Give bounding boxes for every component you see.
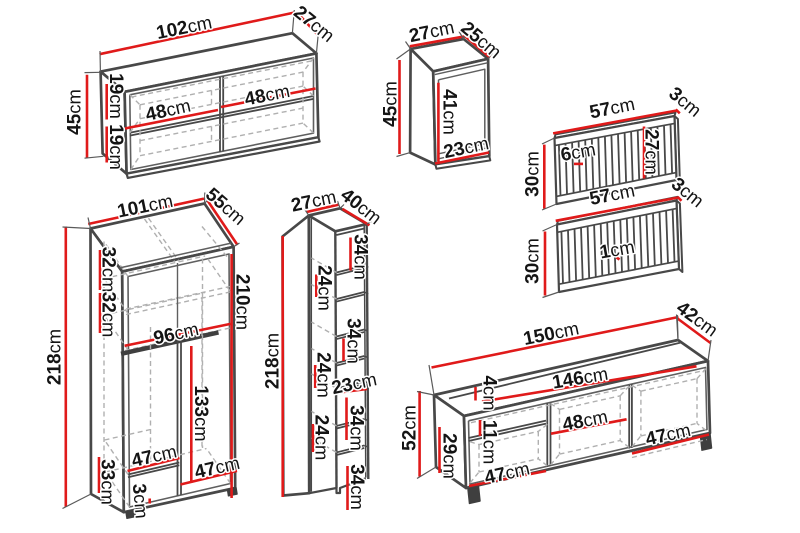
- svg-text:30cm: 30cm: [522, 238, 544, 284]
- svg-text:34cm: 34cm: [345, 405, 367, 451]
- svg-text:52cm: 52cm: [399, 405, 421, 451]
- svg-text:33cm: 33cm: [96, 459, 118, 505]
- svg-text:41cm: 41cm: [438, 89, 460, 135]
- svg-text:19cm: 19cm: [105, 124, 127, 170]
- svg-text:32cm: 32cm: [97, 292, 119, 338]
- svg-text:27cm: 27cm: [640, 129, 662, 175]
- svg-text:218cm: 218cm: [44, 329, 66, 385]
- svg-text:11cm: 11cm: [478, 420, 500, 465]
- svg-text:34cm: 34cm: [346, 464, 368, 510]
- svg-text:45cm: 45cm: [64, 89, 86, 135]
- svg-text:32cm: 32cm: [97, 247, 119, 293]
- svg-text:19cm: 19cm: [105, 73, 127, 119]
- svg-text:45cm: 45cm: [380, 81, 402, 127]
- svg-text:34cm: 34cm: [349, 234, 371, 280]
- svg-text:3cm: 3cm: [128, 483, 153, 520]
- svg-text:34cm: 34cm: [342, 318, 364, 364]
- svg-text:4cm: 4cm: [478, 375, 500, 410]
- svg-text:24cm: 24cm: [312, 352, 334, 398]
- svg-text:210cm: 210cm: [231, 274, 253, 330]
- svg-text:30cm: 30cm: [522, 151, 544, 197]
- svg-text:24cm: 24cm: [313, 265, 335, 311]
- svg-text:29cm: 29cm: [438, 433, 460, 479]
- svg-text:218cm: 218cm: [262, 333, 284, 389]
- svg-text:133cm: 133cm: [190, 385, 212, 441]
- svg-text:24cm: 24cm: [310, 415, 332, 461]
